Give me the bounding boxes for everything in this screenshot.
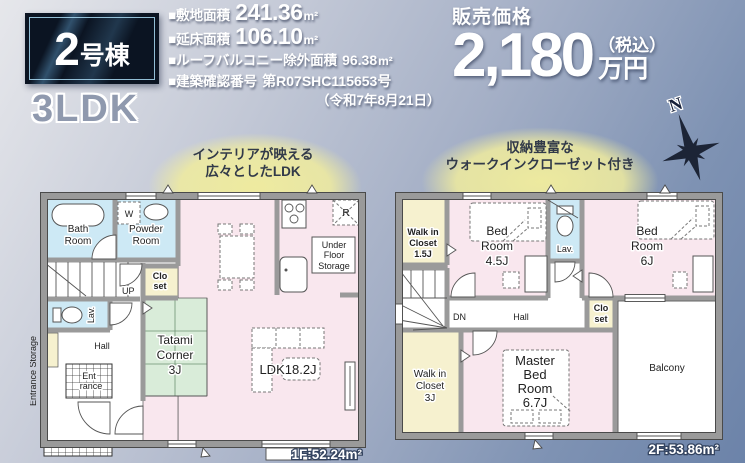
spec-list: ■敷地面積 241.36 m² ■延床面積 106.10 m² ■ルーフバルコニ… xyxy=(168,2,441,110)
spec-permit-number: ■建築確認番号 第R07SHC115653号 xyxy=(168,71,441,92)
spec-value: 106.10 xyxy=(235,26,302,46)
toilet-1f xyxy=(53,307,82,323)
chair-6 xyxy=(673,272,687,288)
spec-unit: m² xyxy=(378,51,393,71)
tatami-label-1: Tatami xyxy=(157,333,192,347)
closet-note-line2: ウォークインクローゼット付き xyxy=(390,156,690,173)
ldk-label: LDK18.2J xyxy=(259,362,316,377)
bed6-label-2: Room xyxy=(631,239,663,253)
master-label-4: 6.7J xyxy=(523,395,548,410)
building-badge: 2 号棟 xyxy=(25,13,159,84)
ldk-note-line1: インテリアが映える xyxy=(143,146,363,163)
closet2f-label-2: set xyxy=(594,314,607,324)
master-label-3: Room xyxy=(518,381,553,396)
powder-sink xyxy=(144,204,168,220)
bed45-label-2: Room xyxy=(481,239,513,253)
spec-unit: m² xyxy=(304,30,319,50)
bed6-label-1: Bed xyxy=(636,224,657,238)
spec-value: 241.36 xyxy=(235,2,302,22)
floor-plan-1f: Bath Room Powder Room W Clo set UP Lav. … xyxy=(30,158,390,463)
kitchen-sink xyxy=(280,257,307,292)
floor1-area-label: 1F:52.24m² xyxy=(291,447,362,462)
floor2-area-label: 2F:53.86m² xyxy=(648,442,719,457)
spec-unit: m² xyxy=(304,6,319,26)
desk-45 xyxy=(525,256,547,292)
price-block: 販売価格 2,180 （税込） 万円 xyxy=(452,2,666,88)
bathroom-label-1: Bath xyxy=(68,224,89,235)
fridge-label: R xyxy=(342,208,349,219)
building-badge-frame: 2 号棟 xyxy=(29,17,155,80)
spec-balcony-area: ■ルーフバルコニー除外面積 96.38 m² xyxy=(168,50,441,71)
spec-value: 第R07SHC115653号 xyxy=(262,71,391,91)
hall2f-label: Hall xyxy=(513,312,529,322)
closet2f-label-1: Clo xyxy=(594,303,609,313)
bathtub xyxy=(52,204,104,226)
entrance-storage-label: Entrance Storage xyxy=(30,336,38,406)
hall1f-label: Hall xyxy=(94,341,110,351)
bed6-label-3: 6J xyxy=(641,254,654,268)
ldk-note-line2: 広々としたLDK xyxy=(143,163,363,180)
tatami-label-3: 3J xyxy=(169,363,182,377)
wic-small-label-1: Walk in xyxy=(407,227,438,237)
desk-6 xyxy=(693,256,713,292)
closet-note: 収納豊富な ウォークインクローゼット付き xyxy=(390,139,690,173)
bed-45 xyxy=(470,203,546,241)
entrance-label-1: Ent xyxy=(82,371,96,381)
tv-board xyxy=(345,362,355,410)
closet1f-label-1: Clo xyxy=(153,271,168,281)
spec-label: ■建築確認番号 xyxy=(168,72,257,92)
floor-plan-2f: Walk in Closet 1.5J Bed Room 4.5J Lav. B… xyxy=(385,158,745,463)
bathroom-label-2: Room xyxy=(65,236,92,247)
up-label: UP xyxy=(122,286,135,296)
spec-label: ■敷地面積 xyxy=(168,6,230,26)
wic-large-label-3: 3J xyxy=(425,393,436,404)
master-label-1: Master xyxy=(515,353,555,368)
powder-label-2: Room xyxy=(133,236,160,247)
bed45-label-1: Bed xyxy=(486,224,507,238)
powder-label-1: Powder xyxy=(129,224,164,235)
chair-45 xyxy=(503,272,519,288)
wic-small-label-3: 1.5J xyxy=(414,249,432,259)
kitchen-stove xyxy=(282,200,306,228)
price-tax-note: （税込） xyxy=(598,31,666,56)
ldk-room-extension xyxy=(143,396,178,444)
ldk-note: インテリアが映える 広々としたLDK xyxy=(143,146,363,180)
tatami-label-2: Corner xyxy=(157,348,194,362)
wic-large-label-2: Closet xyxy=(416,381,445,392)
wic-large-label-1: Walk in xyxy=(414,369,446,380)
wic-small-label-2: Closet xyxy=(409,238,437,248)
ufs-label-1: Under xyxy=(322,240,347,250)
lav2f-label: Lav. xyxy=(557,244,573,254)
ufs-label-3: Storage xyxy=(318,261,350,271)
spec-value: 96.38 xyxy=(342,50,377,70)
dn-label: DN xyxy=(453,312,466,322)
bed45-label-3: 4.5J xyxy=(486,254,509,268)
lav1f-label: Lav. xyxy=(86,307,96,323)
building-number: 2 xyxy=(54,26,80,72)
ufs-label-2: Floor xyxy=(324,250,345,260)
spec-permit-date: （令和7年8月21日） xyxy=(168,92,441,110)
price-side: （税込） 万円 xyxy=(598,31,666,84)
price-unit: 万円 xyxy=(598,56,666,84)
price-amount: 2,180 xyxy=(452,23,592,88)
spec-label: ■ルーフバルコニー除外面積 xyxy=(168,51,337,71)
master-label-2: Bed xyxy=(523,367,546,382)
balcony-label: Balcony xyxy=(649,363,685,374)
spec-label: ■延床面積 xyxy=(168,30,230,50)
price-row: 2,180 （税込） 万円 xyxy=(452,23,666,88)
spec-site-area: ■敷地面積 241.36 m² xyxy=(168,2,441,26)
building-suffix: 号棟 xyxy=(80,36,130,72)
closet1f-label-2: set xyxy=(153,281,166,291)
plan-type-label: 3LDK xyxy=(32,88,139,131)
compass-north-label: N xyxy=(666,93,685,116)
closet-note-line1: 収納豊富な xyxy=(390,139,690,156)
washer-label: W xyxy=(125,209,134,219)
flyer-page: 2 号棟 3LDK ■敷地面積 241.36 m² ■延床面積 106.10 m… xyxy=(0,0,745,463)
entrance-label-2: rance xyxy=(80,381,103,391)
spec-floor-area: ■延床面積 106.10 m² xyxy=(168,26,441,50)
